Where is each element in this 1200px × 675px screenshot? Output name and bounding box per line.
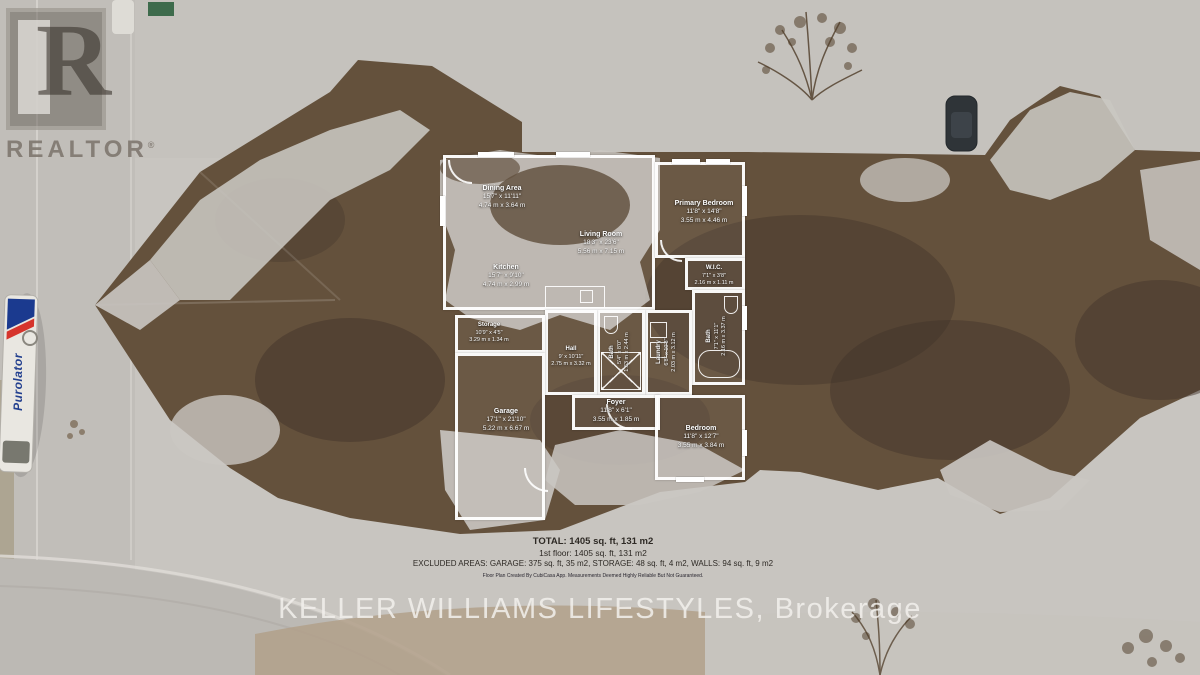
- first-floor-text: 1st floor: 1405 sq. ft, 131 m2: [413, 548, 773, 558]
- room-label-bath-left: Bath 5'4" x 8'0" 1.63 m x 2.44 m: [609, 332, 631, 371]
- registered-symbol: ®: [148, 140, 155, 150]
- room-label-dining-area: Dining Area 15'7" x 11'11" 4.74 m x 3.64…: [479, 184, 526, 210]
- room-label-storage: Storage 10'9" x 4'5" 3.29 m x 1.34 m: [469, 322, 508, 344]
- room-label-primary-bedroom: Primary Bedroom 11'8" x 14'8" 3.55 m x 4…: [675, 199, 734, 225]
- window-marker: [672, 159, 700, 164]
- total-area-text: TOTAL: 1405 sq. ft, 131 m2: [413, 536, 773, 547]
- kitchen-sink: [580, 290, 593, 303]
- door-arc: [660, 240, 682, 262]
- floor-plan-summary: TOTAL: 1405 sq. ft, 131 m2 1st floor: 14…: [413, 536, 773, 579]
- room-label-living-room: Living Room 18'3" x 23'6" 5.56 m x 7.15 …: [578, 230, 625, 256]
- window-marker: [440, 196, 445, 226]
- brokerage-watermark: KELLER WILLIAMS LIFESTYLES, Brokerage: [278, 593, 922, 626]
- room-label-wic: W.I.C. 7'1" x 3'8" 2.16 m x 1.11 m: [694, 265, 733, 287]
- disclaimer-text: Floor Plan Created By CubiCasa App. Meas…: [413, 573, 773, 579]
- room-label-hall: Hall 9' x 10'11" 2.75 m x 3.32 m: [551, 346, 590, 368]
- room-label-laundry: Laundry 6'8" x 10'3" 2.03 m x 3.12 m: [656, 332, 678, 371]
- realtor-brand-text: REALTOR: [6, 136, 148, 163]
- excluded-areas-text: EXCLUDED AREAS: GARAGE: 375 sq. ft, 35 m…: [413, 559, 773, 568]
- window-marker: [676, 477, 704, 482]
- aerial-photo-canvas: Purolator: [0, 0, 1200, 675]
- room-label-bath-right: Bath 7'1" x 11'1" 2.16 m x 3.37 m: [706, 316, 728, 355]
- window-marker: [478, 152, 514, 157]
- window-marker: [556, 152, 590, 157]
- room-label-kitchen: Kitchen 15'7" x 9'10" 4.74 m x 2.99 m: [483, 263, 530, 289]
- window-marker: [706, 159, 730, 164]
- window-marker: [742, 306, 747, 330]
- toilet-fixture: [724, 296, 738, 314]
- realtor-logo-r: R: [36, 4, 111, 118]
- window-marker: [742, 430, 747, 456]
- realtor-watermark: R REALTOR®: [6, 8, 156, 164]
- room-label-foyer: Foyer 11'8" x 6'1" 3.55 m x 1.85 m: [593, 398, 640, 424]
- window-marker: [742, 186, 747, 216]
- room-label-garage: Garage 17'1" x 21'10" 5.22 m x 6.67 m: [483, 407, 530, 433]
- room-outline-garage: [455, 353, 545, 520]
- kitchen-counter: [545, 286, 605, 308]
- room-label-bedroom: Bedroom 11'8" x 12'7" 3.55 m x 3.84 m: [678, 424, 725, 450]
- realtor-wordmark: REALTOR®: [6, 136, 156, 164]
- realtor-logo: R: [6, 8, 106, 130]
